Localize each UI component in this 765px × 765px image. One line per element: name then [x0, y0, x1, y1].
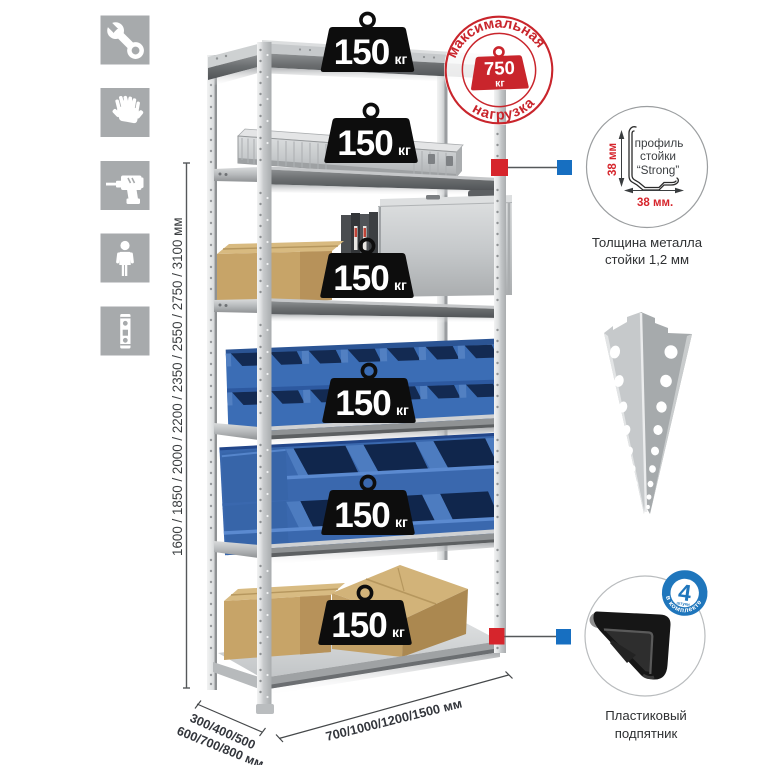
- svg-text:Толщина металла: Толщина металла: [592, 235, 703, 250]
- svg-text:кг: кг: [395, 51, 408, 67]
- svg-text:38 мм.: 38 мм.: [637, 197, 673, 209]
- svg-text:подпятник: подпятник: [615, 726, 678, 741]
- svg-text:кг: кг: [398, 142, 411, 158]
- svg-text:кг: кг: [395, 514, 408, 530]
- svg-text:150: 150: [337, 124, 393, 163]
- svg-text:кг: кг: [392, 624, 405, 640]
- svg-text:150: 150: [334, 33, 390, 72]
- svg-text:профиль: профиль: [635, 136, 684, 150]
- svg-text:38 мм: 38 мм: [607, 143, 619, 176]
- svg-text:стойки: стойки: [640, 149, 676, 163]
- svg-text:кг: кг: [495, 77, 506, 89]
- svg-text:“Strong”: “Strong”: [637, 163, 680, 177]
- svg-text:1600 / 1850 / 2000 / 2200 / 23: 1600 / 1850 / 2000 / 2200 / 2350 / 2550 …: [170, 217, 185, 556]
- svg-text:150: 150: [331, 606, 387, 645]
- svg-text:Пластиковый: Пластиковый: [605, 708, 687, 723]
- svg-text:150: 150: [335, 384, 391, 423]
- svg-text:кг: кг: [394, 277, 407, 293]
- svg-text:кг: кг: [396, 402, 409, 418]
- svg-text:стойки 1,2 мм: стойки 1,2 мм: [605, 252, 689, 267]
- svg-text:150: 150: [333, 259, 389, 298]
- svg-text:750: 750: [484, 57, 516, 79]
- svg-text:150: 150: [334, 496, 390, 535]
